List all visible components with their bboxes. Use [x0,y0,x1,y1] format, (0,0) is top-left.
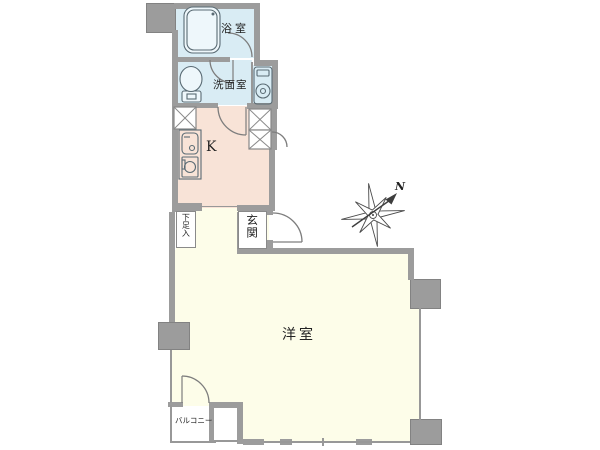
kitchen-door-arc [218,107,246,135]
north-label: N [395,181,405,193]
washer-icon [254,67,272,104]
shoe-cabinet-label: 下足入 [181,213,189,247]
shaft-x-icon [249,130,271,149]
shaft-x-icon [174,107,196,129]
balcony-label: バルコニー [175,417,212,425]
floor-plan: 浴室 洗面室 K 玄関 下足入 洋室 バルコニー N [0,0,600,450]
plan-linework [0,0,600,450]
sink-icon [182,133,198,154]
washroom-label: 洗面室 [213,80,248,91]
balcony-door-arc [182,376,209,403]
toilet-icon [180,67,202,103]
bathroom-label: 浴室 [221,23,249,35]
western-room-label: 洋室 [282,328,316,343]
stove-icon [182,157,198,177]
kitchen-label: K [206,140,216,155]
meter-box-door-arc [272,132,287,147]
bathroom-door-arc [228,33,252,57]
kitchen-counter-icon [179,130,201,179]
entrance-label: 玄関 [246,214,258,248]
bathtub-icon [184,7,220,53]
entrance-door-arc [273,213,302,242]
shaft-x-icon [249,109,271,130]
